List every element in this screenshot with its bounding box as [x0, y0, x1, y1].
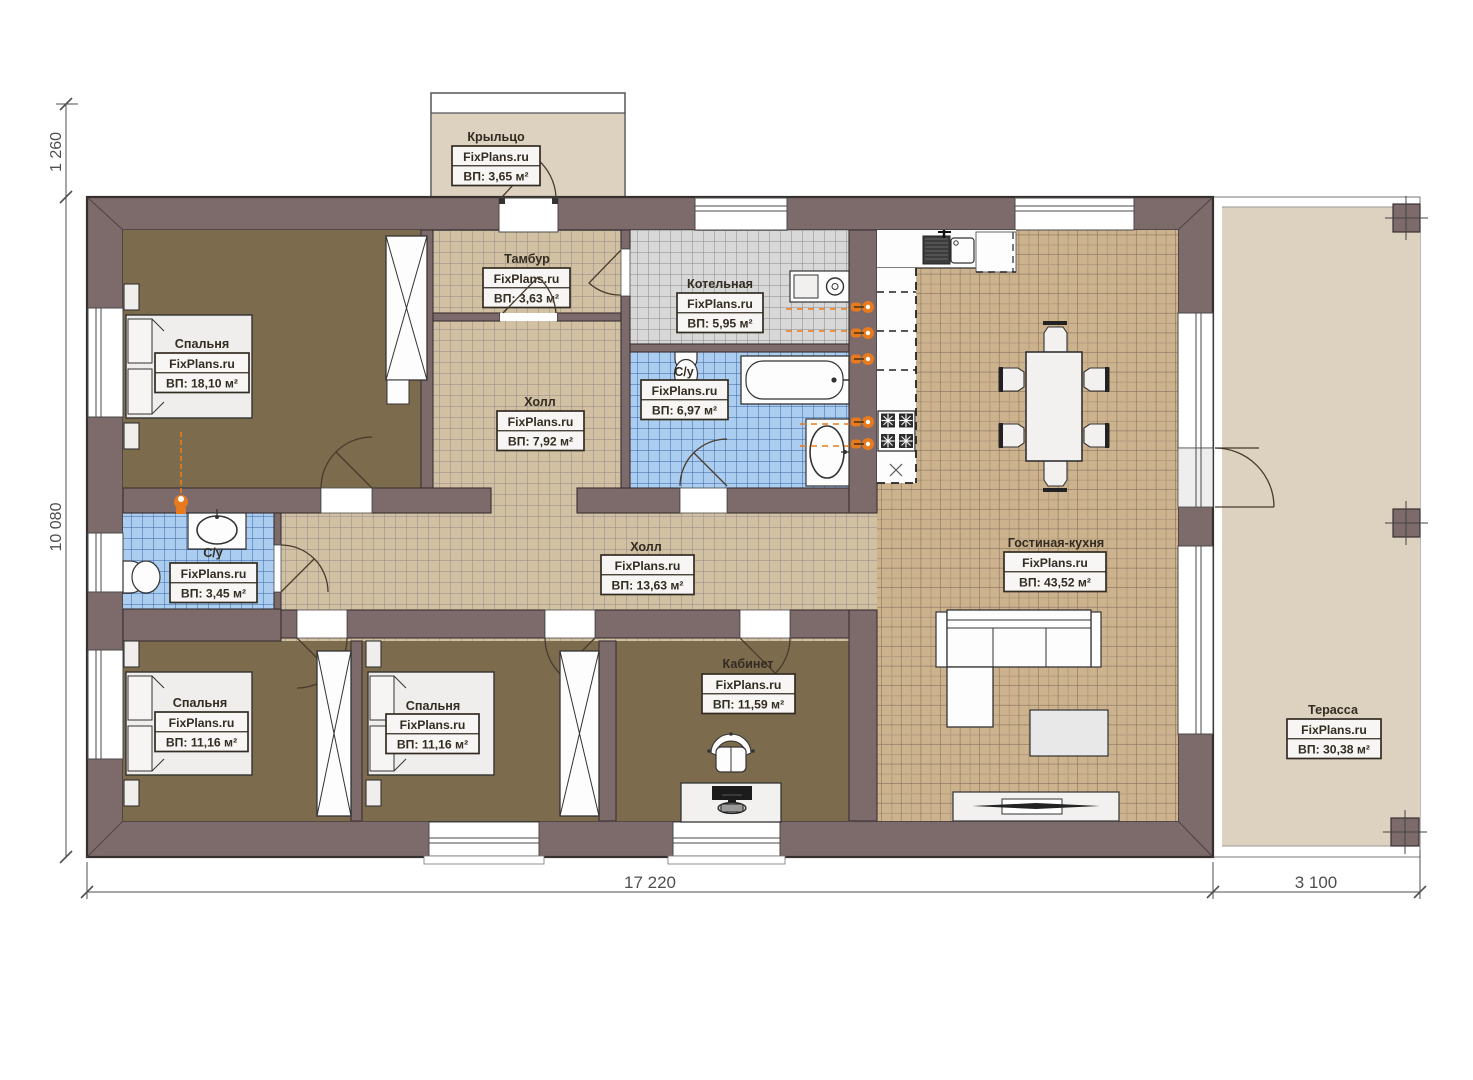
svg-text:FixPlans.ru: FixPlans.ru	[463, 150, 529, 164]
svg-text:ВП: 11,16 м²: ВП: 11,16 м²	[397, 738, 468, 752]
svg-text:Тамбур: Тамбур	[504, 252, 550, 266]
svg-text:10 080: 10 080	[48, 502, 65, 551]
svg-text:FixPlans.ru: FixPlans.ru	[169, 357, 235, 371]
svg-text:Спальня: Спальня	[175, 337, 229, 351]
svg-text:ВП: 7,92 м²: ВП: 7,92 м²	[508, 435, 573, 449]
svg-text:Котельная: Котельная	[687, 277, 753, 291]
svg-text:ВП: 11,59 м²: ВП: 11,59 м²	[713, 698, 784, 712]
svg-text:ВП: 3,45 м²: ВП: 3,45 м²	[181, 587, 246, 601]
svg-text:FixPlans.ru: FixPlans.ru	[652, 384, 718, 398]
svg-text:ВП: 43,52 м²: ВП: 43,52 м²	[1019, 576, 1091, 590]
svg-text:ВП: 3,63 м²: ВП: 3,63 м²	[494, 292, 559, 306]
svg-text:FixPlans.ru: FixPlans.ru	[169, 716, 235, 730]
svg-text:FixPlans.ru: FixPlans.ru	[494, 272, 560, 286]
svg-text:С/у: С/у	[203, 546, 223, 560]
svg-text:FixPlans.ru: FixPlans.ru	[400, 718, 466, 732]
svg-text:3 100: 3 100	[1295, 873, 1338, 892]
svg-text:FixPlans.ru: FixPlans.ru	[1301, 723, 1367, 737]
svg-text:17 220: 17 220	[624, 873, 676, 892]
svg-text:Терасса: Терасса	[1308, 703, 1359, 717]
svg-text:ВП: 30,38 м²: ВП: 30,38 м²	[1298, 743, 1370, 757]
svg-text:Гостиная-кухня: Гостиная-кухня	[1008, 536, 1105, 550]
svg-text:С/у: С/у	[674, 365, 694, 379]
svg-text:ВП: 13,63 м²: ВП: 13,63 м²	[612, 579, 684, 593]
svg-text:FixPlans.ru: FixPlans.ru	[508, 415, 574, 429]
svg-text:FixPlans.ru: FixPlans.ru	[716, 678, 782, 692]
svg-text:Холл: Холл	[630, 540, 662, 554]
svg-text:FixPlans.ru: FixPlans.ru	[181, 567, 247, 581]
svg-text:ВП: 18,10 м²: ВП: 18,10 м²	[166, 377, 238, 391]
svg-text:ВП: 11,16 м²: ВП: 11,16 м²	[166, 736, 237, 750]
svg-text:1 260: 1 260	[48, 132, 65, 172]
svg-text:ВП: 6,97 м²: ВП: 6,97 м²	[652, 404, 717, 418]
svg-text:Кабинет: Кабинет	[723, 657, 774, 671]
svg-text:Спальня: Спальня	[406, 699, 460, 713]
svg-text:ВП: 5,95 м²: ВП: 5,95 м²	[687, 317, 752, 331]
svg-text:FixPlans.ru: FixPlans.ru	[1022, 556, 1088, 570]
svg-text:Спальня: Спальня	[173, 696, 227, 710]
svg-text:Холл: Холл	[524, 395, 556, 409]
svg-text:FixPlans.ru: FixPlans.ru	[687, 297, 753, 311]
svg-text:ВП: 3,65 м²: ВП: 3,65 м²	[463, 170, 528, 184]
svg-text:FixPlans.ru: FixPlans.ru	[615, 559, 681, 573]
svg-text:Крыльцо: Крыльцо	[467, 130, 525, 144]
